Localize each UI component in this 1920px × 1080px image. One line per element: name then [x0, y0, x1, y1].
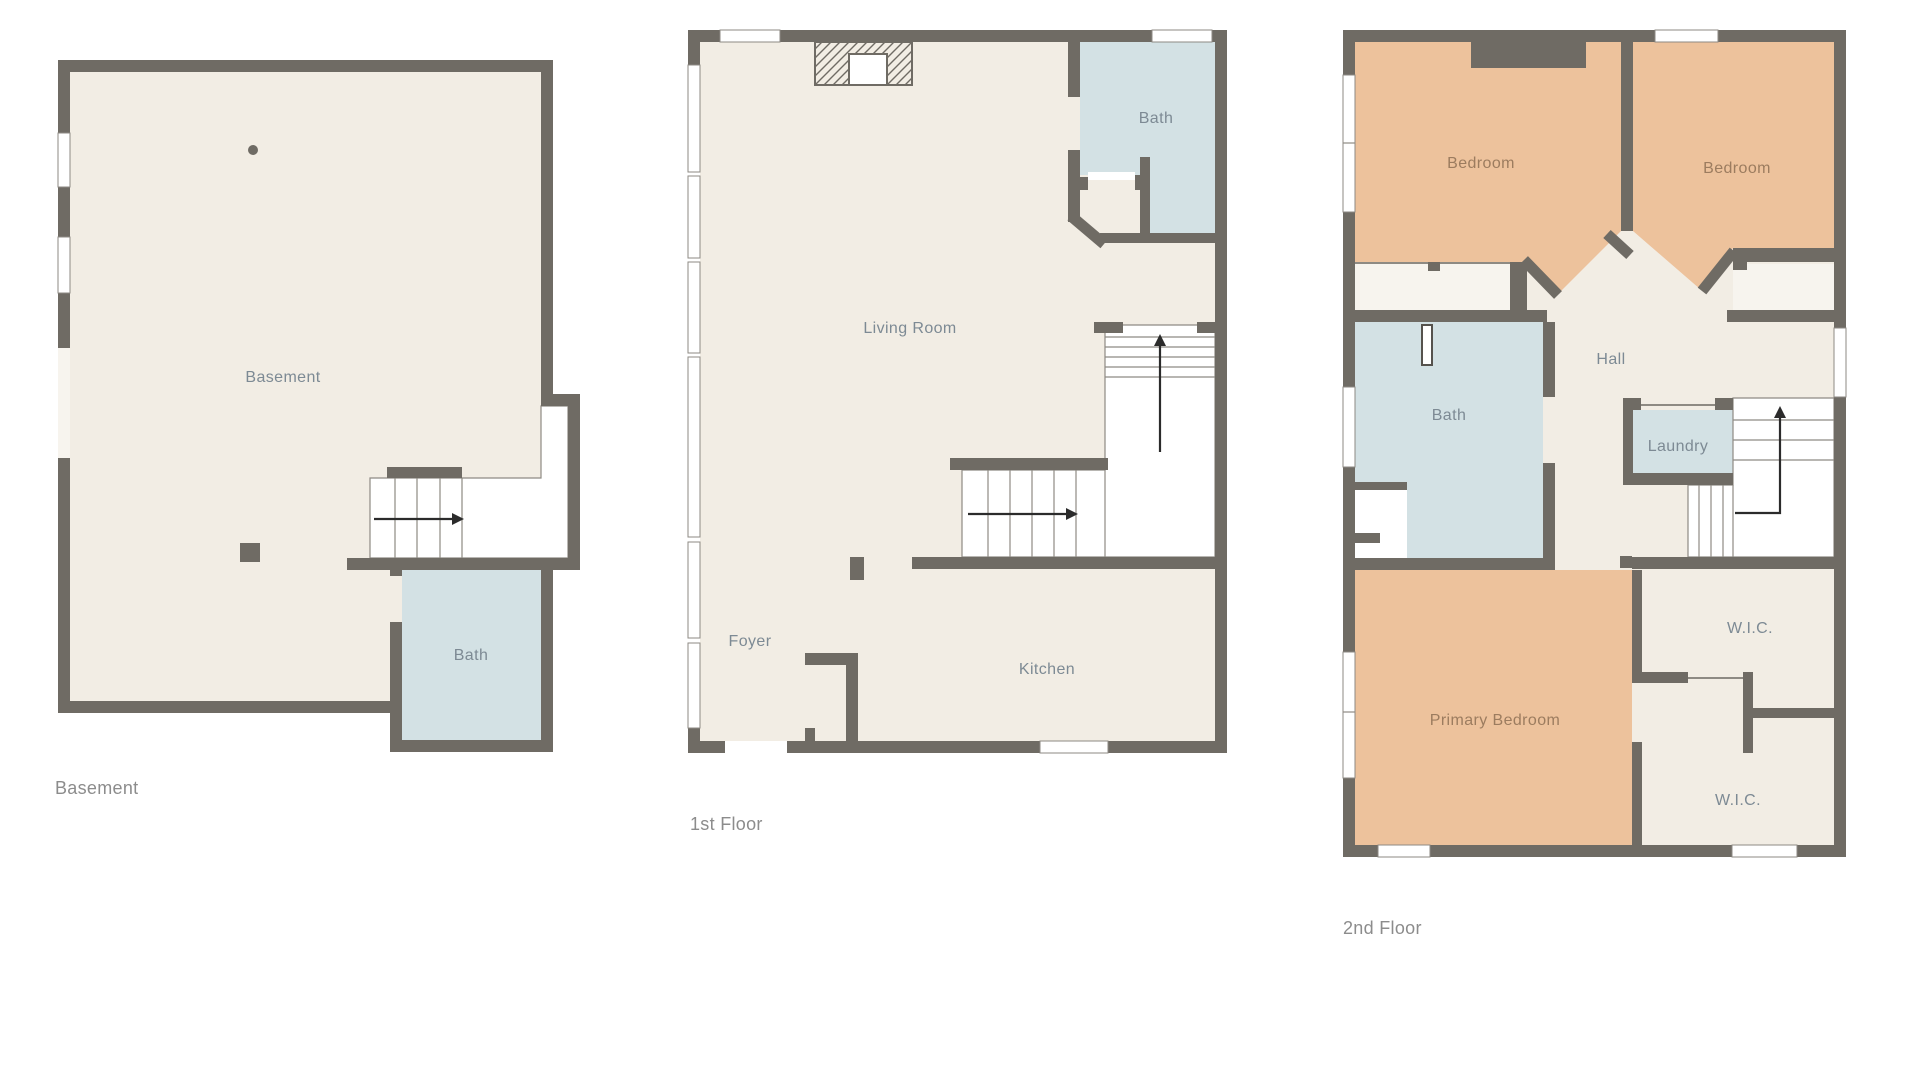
second-floor-plan: Bedroom Bedroom Bath Hall Laundry Primar… — [1343, 30, 1846, 938]
window — [688, 643, 700, 728]
window — [720, 30, 780, 42]
chimney-notch — [1471, 42, 1586, 68]
window — [1040, 741, 1108, 753]
floor-label-basement: Basement — [55, 778, 138, 798]
window — [1732, 845, 1797, 857]
room-label-primary-bedroom: Primary Bedroom — [1430, 712, 1560, 729]
shower-door — [1422, 325, 1432, 365]
window — [688, 176, 700, 258]
room-label-bedroom-left: Bedroom — [1447, 155, 1515, 172]
room-primary-bedroom — [1355, 570, 1632, 845]
window — [1834, 328, 1846, 397]
room-label-foyer: Foyer — [729, 633, 772, 650]
room-label-bedroom-right: Bedroom — [1703, 160, 1771, 177]
window — [688, 262, 700, 353]
room-label-living-room: Living Room — [863, 320, 956, 337]
bath-door-threshold — [1088, 172, 1135, 180]
bath-alcove — [1355, 490, 1407, 560]
room-label-basement-bath: Bath — [454, 647, 489, 664]
window — [688, 65, 700, 172]
floor-plan-page: Basement Bath Basement — [0, 0, 1920, 1080]
room-label-hall: Hall — [1596, 351, 1625, 368]
floor-label-first-floor: 1st Floor — [690, 814, 763, 834]
fireplace — [815, 42, 912, 85]
room-label-wic-upper: W.I.C. — [1727, 620, 1773, 637]
floor-label-second-floor: 2nd Floor — [1343, 918, 1422, 938]
first-floor-plan: Living Room Bath Foyer Kitchen 1st Floor — [688, 30, 1227, 834]
window — [1655, 30, 1718, 42]
window — [1343, 652, 1355, 778]
room-label-laundry: Laundry — [1648, 438, 1709, 455]
window — [688, 542, 700, 638]
wall-opening — [58, 348, 70, 458]
support-column-dot — [248, 145, 258, 155]
window — [1152, 30, 1212, 42]
floor-plan-image: Basement Bath Basement — [0, 0, 1920, 1080]
closet-right — [1733, 264, 1834, 310]
window — [1343, 387, 1355, 467]
front-door-opening — [725, 741, 787, 753]
room-label-second-floor-bath: Bath — [1432, 407, 1467, 424]
basement-plan: Basement Bath Basement — [55, 60, 580, 798]
window — [1378, 845, 1430, 857]
support-column — [240, 543, 260, 562]
room-label-wic-lower: W.I.C. — [1715, 792, 1761, 809]
room-label-kitchen: Kitchen — [1019, 661, 1075, 678]
room-label-basement: Basement — [245, 369, 320, 386]
room-label-first-floor-bath: Bath — [1139, 110, 1174, 127]
window — [688, 357, 700, 537]
window — [58, 237, 70, 293]
window — [58, 133, 70, 187]
